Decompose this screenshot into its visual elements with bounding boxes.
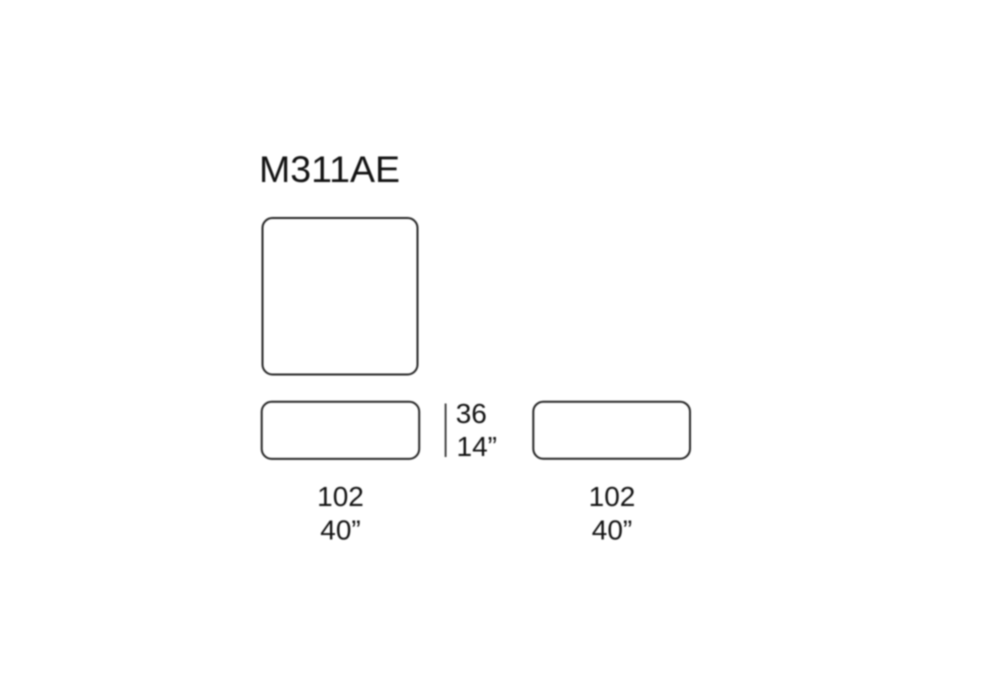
svg-text:36: 36 [456, 398, 487, 429]
svg-text:40”: 40” [592, 515, 632, 546]
svg-text:102: 102 [589, 481, 636, 512]
svg-text:102: 102 [317, 481, 364, 512]
svg-text:40”: 40” [320, 515, 360, 546]
svg-text:14”: 14” [457, 431, 497, 462]
svg-text:M311AE: M311AE [259, 148, 400, 190]
